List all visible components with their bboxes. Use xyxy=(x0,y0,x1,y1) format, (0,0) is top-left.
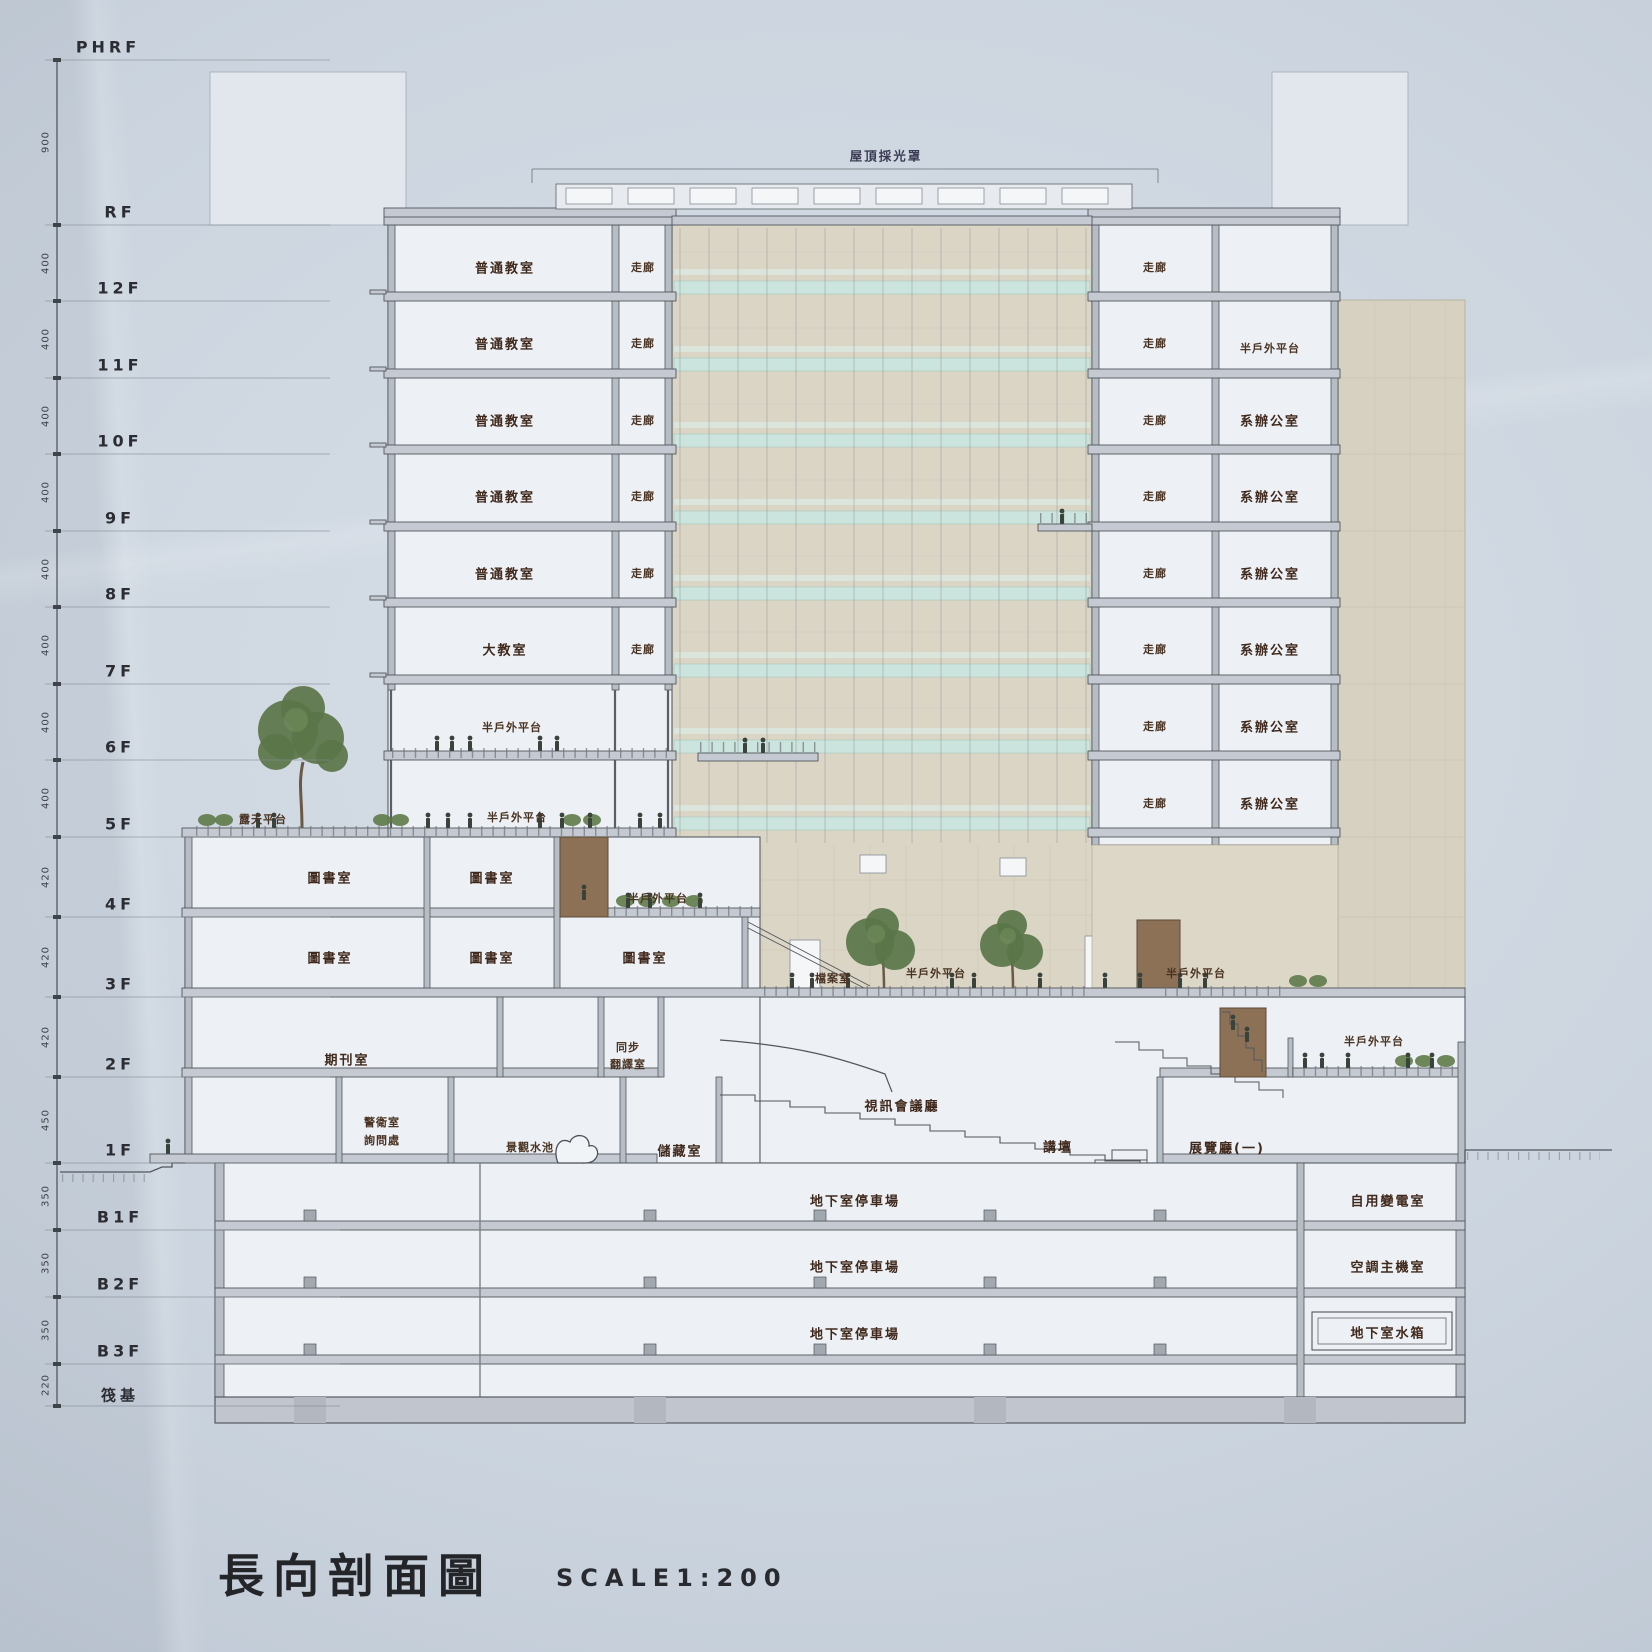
room-label-classroom-12f: 普通教室 xyxy=(475,258,535,277)
room-label-parking-b2: 地下室停車場 xyxy=(810,1257,900,1276)
room-label-corridor-l7: 走廊 xyxy=(631,641,655,657)
dim-b1f-b2f: 350 xyxy=(41,1252,52,1274)
room-label-storage: 儲藏室 xyxy=(657,1141,702,1160)
drawing-title: 長向剖面圖 xyxy=(218,1540,493,1606)
room-label-lectern: 講壇 xyxy=(1043,1137,1073,1156)
floor-label-3f: 3F xyxy=(105,975,135,994)
floor-label-4f: 4F xyxy=(105,895,135,914)
dim-2f-1f: 450 xyxy=(41,1109,52,1131)
floor-label-7f: 7F xyxy=(105,662,135,681)
floor-label-b2f: B2F xyxy=(97,1275,143,1294)
floor-label-6f: 6F xyxy=(105,738,135,757)
room-label-classroom-11f: 普通教室 xyxy=(475,334,535,353)
stair-tower-left xyxy=(560,837,608,917)
skylight-label: 屋頂採光罩 xyxy=(850,146,923,165)
balcony-9f xyxy=(1038,524,1092,531)
floor-label-1f: 1F xyxy=(105,1141,135,1160)
room-label-corridor-r6: 走廊 xyxy=(1143,718,1167,734)
dim-b2f-b3f: 350 xyxy=(41,1319,52,1341)
dim-rf-12f: 400 xyxy=(41,252,52,274)
room-label-av-hall: 視訊會議廳 xyxy=(864,1096,939,1115)
room-label-parking-b1: 地下室停車場 xyxy=(810,1191,900,1210)
background-building xyxy=(1338,300,1465,1063)
floor-label-5f: 5F xyxy=(105,815,135,834)
room-label-semi-outdoor-6f: 半戶外平台 xyxy=(482,719,542,735)
dim-10f-9f: 400 xyxy=(41,481,52,503)
room-label-office-5f: 系辦公室 xyxy=(1240,794,1300,813)
room-label-semi-outdoor-11f: 半戶外平台 xyxy=(1240,340,1300,356)
floor-label-2f: 2F xyxy=(105,1055,135,1074)
floor-label-raft: 筏基 xyxy=(101,1385,139,1406)
dim-8f-7f: 400 xyxy=(41,634,52,656)
dim-b3f-raft: 220 xyxy=(41,1374,52,1396)
room-label-classroom-10f: 普通教室 xyxy=(475,411,535,430)
dim-11f-10f: 400 xyxy=(41,405,52,427)
room-label-office-9f: 系辦公室 xyxy=(1240,487,1300,506)
penthouse-block-left xyxy=(210,72,406,225)
room-label-semi-outdoor-5f: 半戶外平台 xyxy=(487,809,547,825)
room-label-sync-line2: 翻譯室 xyxy=(610,1056,646,1072)
room-label-library-4f-a: 圖書室 xyxy=(307,868,352,887)
room-label-guard-line1: 警衛室 xyxy=(364,1114,400,1130)
dim-12f-11f: 400 xyxy=(41,328,52,350)
room-label-library-3f-c: 圖書室 xyxy=(622,948,667,967)
floor-label-b3f: B3F xyxy=(97,1342,143,1361)
room-label-corridor-r9: 走廊 xyxy=(1143,488,1167,504)
room-label-corridor-r5: 走廊 xyxy=(1143,795,1167,811)
room-label-office-7f: 系辦公室 xyxy=(1240,640,1300,659)
dim-3f-2f: 420 xyxy=(41,1026,52,1048)
left-tower-sunshades xyxy=(370,290,386,677)
room-label-corridor-r12: 走廊 xyxy=(1143,259,1167,275)
room-label-exhibition: 展覽廳(一) xyxy=(1189,1138,1265,1157)
room-label-corridor-l8: 走廊 xyxy=(631,565,655,581)
room-label-library-4f-b: 圖書室 xyxy=(469,868,514,887)
room-label-corridor-r8: 走廊 xyxy=(1143,565,1167,581)
room-label-classroom-9f: 普通教室 xyxy=(475,487,535,506)
room-label-office-8f: 系辦公室 xyxy=(1240,564,1300,583)
room-label-hvac: 空調主機室 xyxy=(1350,1257,1425,1276)
atrium-bridge xyxy=(698,753,818,761)
room-label-semi-outdoor-2f: 半戶外平台 xyxy=(1344,1033,1404,1049)
room-label-semi-outdoor-3f-a: 半戶外平台 xyxy=(906,965,966,981)
room-label-corridor-l9: 走廊 xyxy=(631,488,655,504)
drawing-scale: SCALE1:200 xyxy=(556,1564,788,1592)
room-label-corridor-r11: 走廊 xyxy=(1143,335,1167,351)
floor-label-phrf: PHRF xyxy=(76,38,140,57)
dim-7f-6f: 400 xyxy=(41,711,52,733)
room-label-library-3f-a: 圖書室 xyxy=(307,948,352,967)
room-label-semi-outdoor-4f: 半戶外平台 xyxy=(628,890,688,906)
floor-label-b1f: B1F xyxy=(97,1208,143,1227)
room-label-classroom-8f: 普通教室 xyxy=(475,564,535,583)
dim-6f-5f: 400 xyxy=(41,787,52,809)
dim-9f-8f: 400 xyxy=(41,558,52,580)
floor-label-rf: RF xyxy=(104,203,135,222)
podium-right xyxy=(760,997,1465,1163)
tree-large xyxy=(258,686,348,828)
penthouse-block-right xyxy=(1272,72,1408,225)
room-label-landscape-pool: 景觀水池 xyxy=(506,1139,554,1155)
room-label-parking-b3: 地下室停車場 xyxy=(810,1324,900,1343)
stair-2f-right xyxy=(1220,1008,1266,1077)
room-label-office-10f: 系辦公室 xyxy=(1240,411,1300,430)
floor-label-10f: 10F xyxy=(97,432,142,451)
room-label-corridor-r10: 走廊 xyxy=(1143,412,1167,428)
ground-left xyxy=(60,1163,185,1172)
floor-label-11f: 11F xyxy=(97,356,142,375)
room-label-transformer: 自用變電室 xyxy=(1350,1191,1425,1210)
room-label-big-classroom-7f: 大教室 xyxy=(482,640,527,659)
floor-label-9f: 9F xyxy=(105,509,135,528)
room-label-guard-line2: 詢問處 xyxy=(364,1132,400,1148)
room-label-archives: 檔案室 xyxy=(815,970,851,986)
window xyxy=(1000,858,1026,876)
photographed-section-drawing: PHRF RF 12F 11F 10F 9F 8F 7F 6F 5F 4F 3F… xyxy=(0,0,1652,1652)
room-label-corridor-l12: 走廊 xyxy=(631,259,655,275)
room-label-periodicals: 期刊室 xyxy=(324,1050,369,1069)
room-label-sync-line1: 同步 xyxy=(616,1039,640,1055)
room-label-water-tank: 地下室水箱 xyxy=(1350,1323,1425,1342)
room-label-office-6f: 系辦公室 xyxy=(1240,717,1300,736)
room-label-open-roof-deck: 露天平台 xyxy=(239,811,287,827)
room-label-corridor-r7: 走廊 xyxy=(1143,641,1167,657)
room-label-corridor-l11: 走廊 xyxy=(631,335,655,351)
dim-4f-3f: 420 xyxy=(41,946,52,968)
floor-label-8f: 8F xyxy=(105,585,135,604)
dim-5f-4f: 420 xyxy=(41,866,52,888)
room-label-corridor-l10: 走廊 xyxy=(631,412,655,428)
dim-phrf-rf: 900 xyxy=(41,131,52,153)
raft-foundation xyxy=(215,1397,1465,1423)
dim-1f-b1f: 350 xyxy=(41,1185,52,1207)
floor-label-12f: 12F xyxy=(97,279,142,298)
window xyxy=(860,855,886,873)
room-label-semi-outdoor-3f-b: 半戶外平台 xyxy=(1166,965,1226,981)
room-label-library-3f-b: 圖書室 xyxy=(469,948,514,967)
